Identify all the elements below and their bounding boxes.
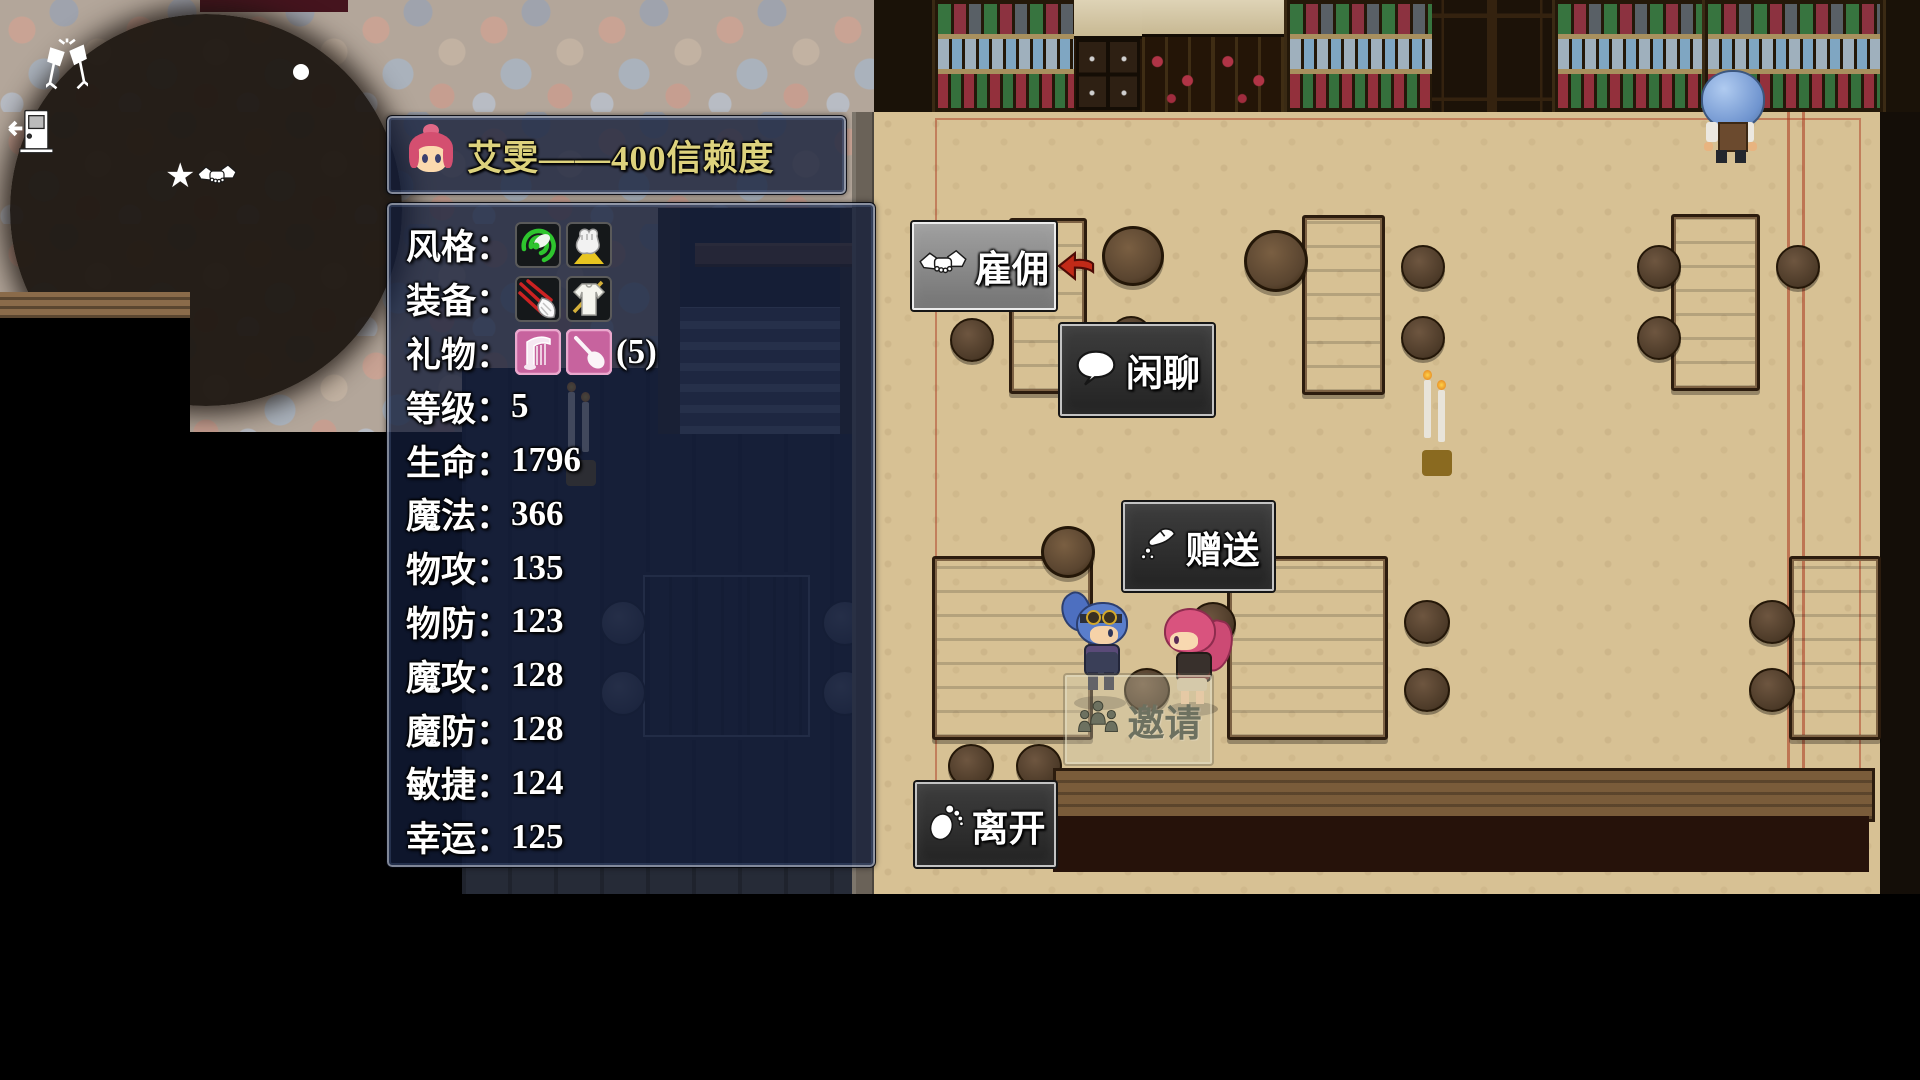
invite-button[interactable]: 邀请 [1065, 675, 1212, 764]
stat-value: 124 [511, 763, 564, 803]
style-yellow-fist-icon [566, 222, 612, 268]
gift-count: (5) [616, 332, 657, 372]
npc-title-text: 艾雯——400信赖度 [467, 130, 775, 181]
long-table-horizontal [1053, 768, 1875, 822]
npc-portrait [409, 128, 453, 182]
stat-row-hp: 生命：1796 [387, 433, 875, 487]
stat-row-def: 物防：123 [387, 595, 875, 649]
stat-value: 1796 [511, 440, 581, 480]
stat-label: 风格： [406, 219, 511, 270]
stat-label: 礼物： [406, 327, 511, 378]
npc-bartender-sprite [1698, 70, 1764, 180]
group-people-icon [1076, 700, 1120, 739]
equip-armor-icon [566, 276, 612, 322]
stat-row-style: 风格： [387, 218, 875, 272]
stat-row-mdef: 魔防：128 [387, 702, 875, 756]
stat-row-matk: 魔攻：128 [387, 648, 875, 702]
exit-door-icon [7, 105, 53, 162]
stat-value: 135 [511, 548, 564, 588]
hire-button[interactable]: 雇佣 [912, 222, 1056, 310]
red-arrow-cursor [1056, 250, 1096, 282]
handshake-icon [919, 247, 967, 286]
gift-harp-icon [515, 329, 561, 375]
wood-ledge [0, 292, 190, 318]
stat-row-luck: 幸运：125 [387, 810, 875, 864]
style-green-whirl-icon [515, 222, 561, 268]
stat-row-gift: 礼物： (5) [387, 326, 875, 380]
stat-value: 125 [511, 817, 564, 857]
long-table [1789, 556, 1881, 740]
goggles-icon [1086, 610, 1101, 625]
stat-value: 128 [511, 655, 564, 695]
leave-button[interactable]: 离开 [915, 782, 1056, 867]
gift-button[interactable]: 赠送 [1123, 502, 1274, 591]
cheers-icon [46, 38, 88, 99]
round-table [1244, 230, 1308, 292]
candelabra-right [1422, 372, 1452, 476]
meet-handshake-star-icon: ★ [165, 156, 237, 196]
npc-title-bar: 艾雯——400信赖度 [386, 115, 847, 195]
speech-bubble-icon [1074, 349, 1118, 391]
stat-row-mp: 魔法：366 [387, 487, 875, 541]
stat-row-level: 等级：5 [387, 379, 875, 433]
round-stool [1041, 526, 1095, 578]
long-table [1671, 214, 1760, 391]
gift-spoon-icon [566, 329, 612, 375]
stat-value: 123 [511, 601, 564, 641]
stat-label: 装备： [406, 273, 511, 324]
stat-row-atk: 物攻：135 [387, 541, 875, 595]
round-table [1102, 226, 1164, 286]
footprint-icon [926, 802, 964, 847]
game-screen: ★ [0, 0, 1920, 1080]
long-table [1302, 215, 1385, 395]
stat-value: 5 [511, 386, 529, 426]
location-dot [293, 64, 309, 80]
stat-row-agi: 敏捷：124 [387, 756, 875, 810]
right-wall [1880, 0, 1920, 894]
roof-edge [200, 0, 348, 12]
npc-stats-panel: 风格： [386, 202, 876, 868]
equip-claw-icon [515, 276, 561, 322]
stat-value: 128 [511, 709, 564, 749]
stat-value: 366 [511, 494, 564, 534]
give-hand-icon [1138, 526, 1178, 567]
chat-button[interactable]: 闲聊 [1060, 324, 1214, 416]
stat-row-equip: 装备： [387, 272, 875, 326]
